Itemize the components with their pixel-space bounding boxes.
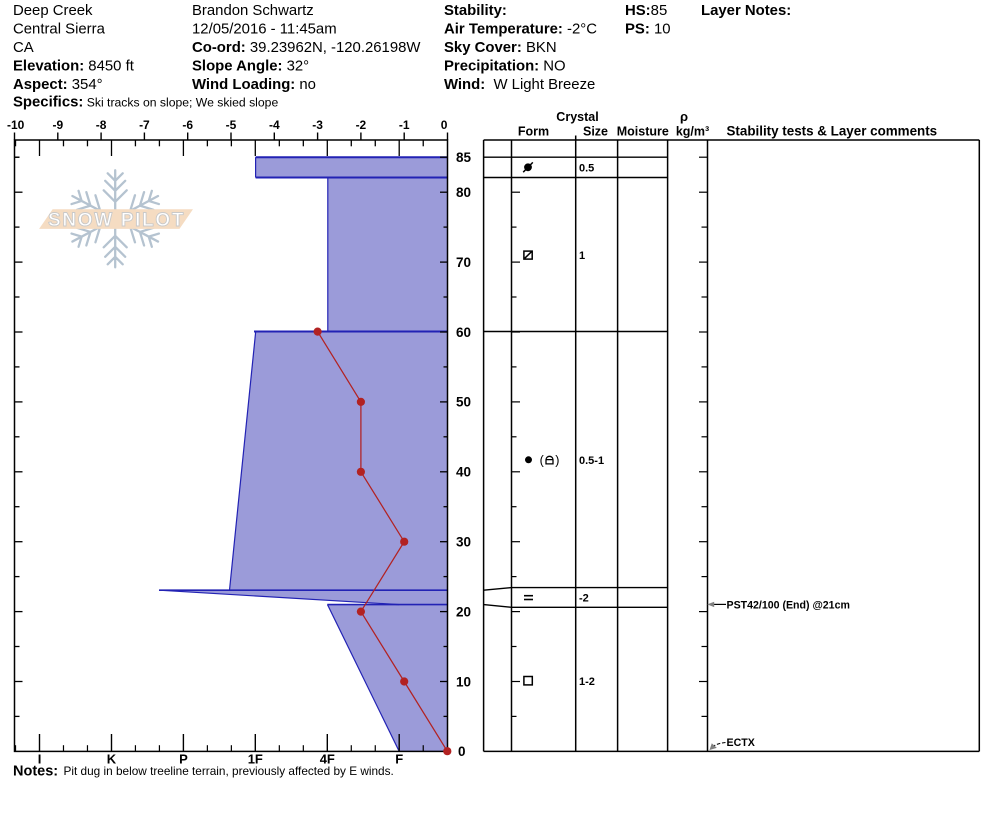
svg-text:Layer Notes:: Layer Notes:	[701, 3, 791, 19]
svg-text:-4: -4	[269, 118, 280, 132]
svg-text:20: 20	[456, 604, 471, 619]
svg-text:CA: CA	[13, 40, 34, 56]
svg-text:-2: -2	[579, 593, 589, 605]
svg-text:Air Temperature: -2°C: Air Temperature: -2°C	[444, 22, 597, 38]
svg-text:SNOW PILOT: SNOW PILOT	[48, 210, 185, 231]
svg-text:-10: -10	[7, 118, 25, 132]
svg-text:0: 0	[441, 118, 448, 132]
svg-text:Sky Cover: BKN: Sky Cover: BKN	[444, 40, 557, 56]
svg-text:Wind Loading: no: Wind Loading: no	[192, 77, 316, 93]
svg-text:Co-ord: 39.23962N, -120.26198W: Co-ord: 39.23962N, -120.26198W	[192, 40, 420, 56]
svg-text:80: 80	[456, 185, 471, 200]
svg-text:Brandon Schwartz: Brandon Schwartz	[192, 3, 314, 19]
svg-text:1-2: 1-2	[579, 676, 595, 688]
svg-text:Slope Angle: 32°: Slope Angle: 32°	[192, 58, 309, 74]
svg-text:12/05/2016 - 11:45am: 12/05/2016 - 11:45am	[192, 22, 337, 38]
svg-text:Stability:: Stability:	[444, 3, 507, 19]
svg-text:kg/m³: kg/m³	[676, 125, 709, 139]
svg-text:ECTX: ECTX	[727, 737, 755, 749]
svg-text:PS: 10: PS: 10	[625, 22, 671, 38]
svg-text:ρ: ρ	[680, 109, 688, 124]
svg-text:Elevation: 8450 ft: Elevation: 8450 ft	[13, 58, 135, 74]
svg-text:Specifics: Ski tracks on slope: Specifics: Ski tracks on slope; We skied…	[13, 95, 278, 111]
svg-text:Wind: W Light Breeze: Wind: W Light Breeze	[444, 77, 595, 93]
svg-text:0: 0	[458, 744, 466, 759]
svg-text:Notes:: Notes:	[13, 764, 58, 780]
svg-text:(: (	[540, 453, 545, 467]
svg-text:0.5: 0.5	[579, 162, 594, 174]
svg-text:0.5-1: 0.5-1	[579, 455, 604, 467]
svg-text:10: 10	[456, 674, 471, 689]
svg-text:-3: -3	[312, 118, 323, 132]
svg-text:Size: Size	[583, 125, 608, 139]
svg-text:-5: -5	[226, 118, 237, 132]
svg-text:): )	[555, 453, 559, 467]
svg-text:Precipitation: NO: Precipitation: NO	[444, 58, 566, 74]
svg-text:Central Sierra: Central Sierra	[13, 22, 106, 38]
svg-text:Deep Creek: Deep Creek	[13, 3, 93, 19]
svg-text:1: 1	[579, 250, 585, 262]
svg-text:PST42/100 (End) @21cm: PST42/100 (End) @21cm	[727, 599, 850, 611]
svg-text:40: 40	[456, 465, 471, 480]
svg-text:70: 70	[456, 255, 471, 270]
svg-text:HS:85: HS:85	[625, 3, 667, 19]
svg-text:-9: -9	[52, 118, 63, 132]
svg-text:-1: -1	[399, 118, 410, 132]
svg-text:-6: -6	[182, 118, 193, 132]
svg-text:-2: -2	[356, 118, 367, 132]
svg-text:F: F	[395, 752, 403, 767]
svg-text:30: 30	[456, 535, 471, 550]
svg-text:Crystal: Crystal	[556, 110, 598, 124]
svg-text:85: 85	[456, 150, 472, 165]
svg-text:Stability tests & Layer commen: Stability tests & Layer comments	[727, 124, 938, 139]
svg-text:-7: -7	[139, 118, 150, 132]
svg-text:-8: -8	[96, 118, 107, 132]
svg-text:Aspect: 354°: Aspect: 354°	[13, 77, 103, 93]
svg-text:60: 60	[456, 325, 471, 340]
svg-text:Pit dug in below treeline terr: Pit dug in below treeline terrain, previ…	[64, 764, 394, 778]
svg-text:50: 50	[456, 395, 471, 410]
svg-text:Moisture: Moisture	[617, 125, 669, 139]
svg-text:Form: Form	[518, 125, 549, 139]
